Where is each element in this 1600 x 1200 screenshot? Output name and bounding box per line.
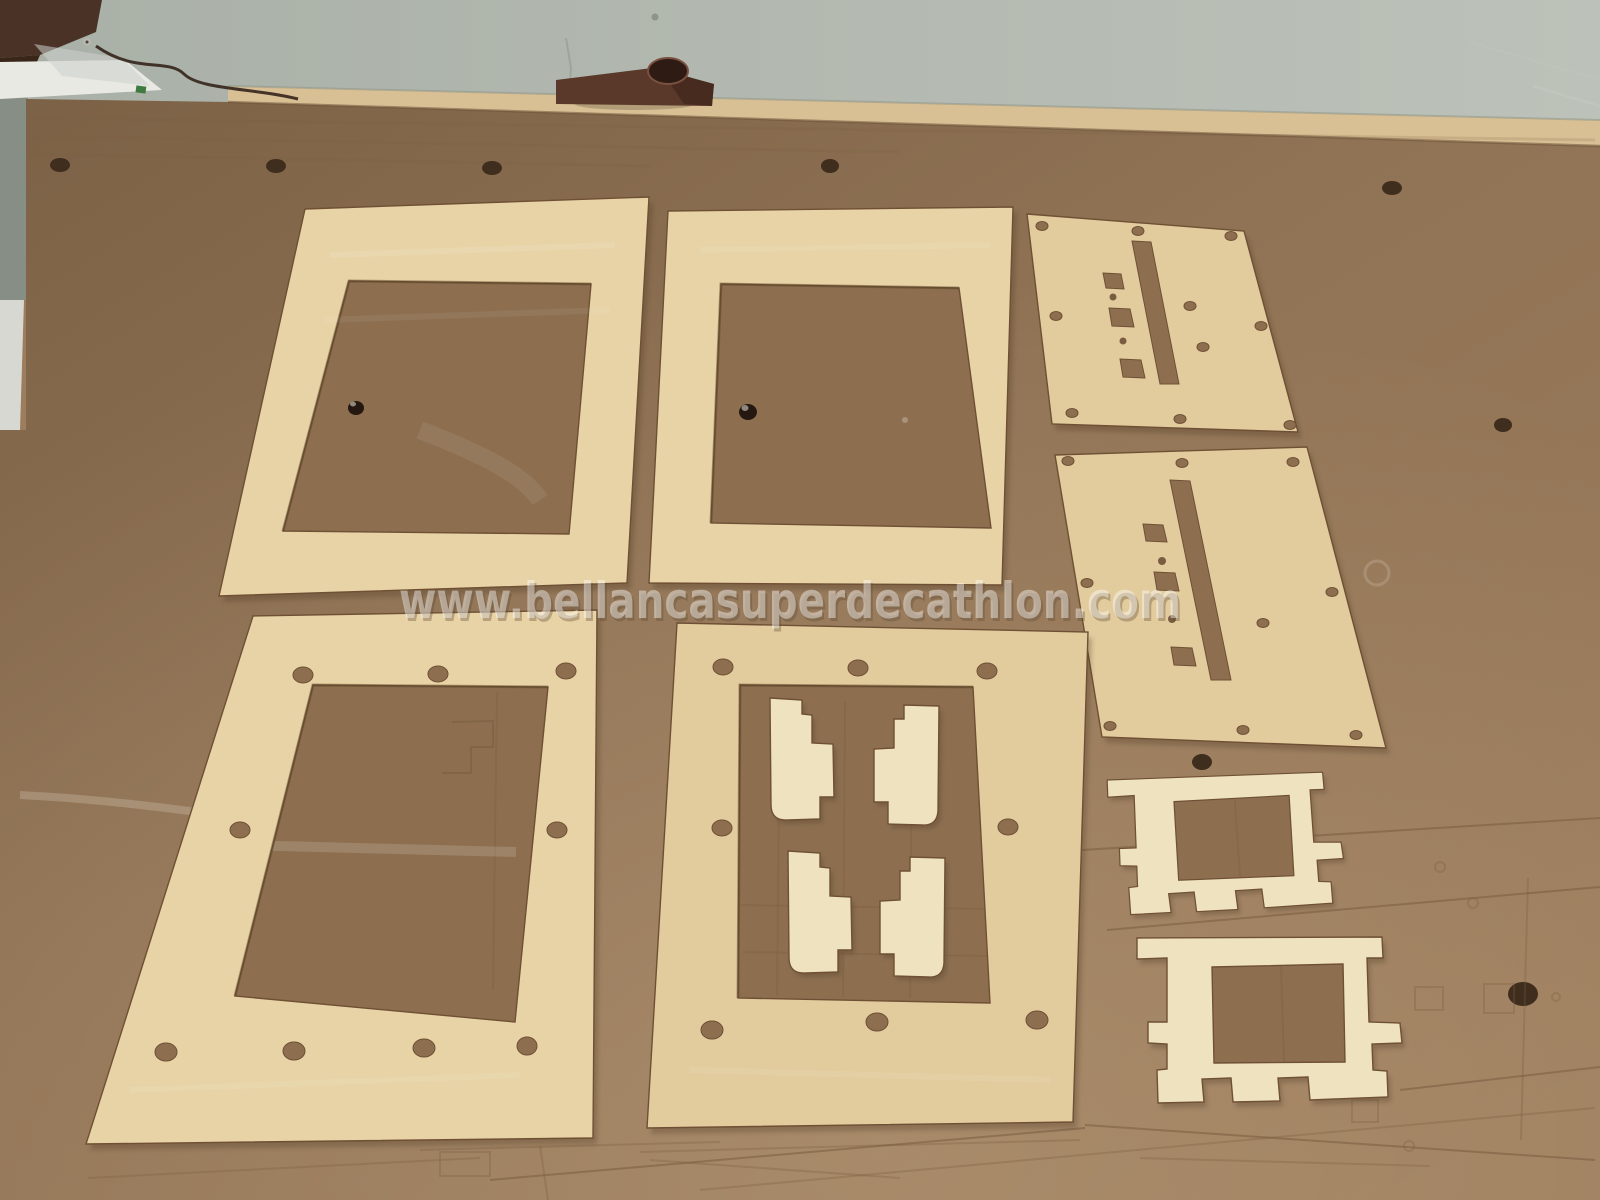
mdf-hole [1494, 418, 1512, 432]
mdf-knot-hole [1508, 982, 1538, 1006]
square-hole [1109, 308, 1134, 327]
bolt-frame-2 [647, 623, 1092, 1134]
mdf-hole [1192, 754, 1212, 770]
workshop-photo: www.bellancasuperdecathlon.com www.bella… [0, 0, 1600, 1200]
watermark: www.bellancasuperdecathlon.com www.bella… [399, 572, 1183, 633]
pilot-hole [1158, 557, 1166, 565]
wall-nail-hole [652, 14, 659, 21]
screw-glint [742, 405, 749, 411]
baseboard-sliver [0, 300, 24, 430]
square-hole [1120, 359, 1145, 378]
square-hole [1143, 524, 1167, 542]
mdf-hole [1382, 181, 1402, 195]
pilot-hole [1120, 338, 1127, 345]
mdf-hole [821, 159, 839, 173]
machine-screw-slot [86, 41, 89, 44]
ladder-former-1 [1107, 772, 1348, 920]
window-frame-2 [649, 207, 1017, 591]
pilot-hole [1110, 294, 1117, 301]
cnc-cut-parts-scene: www.bellancasuperdecathlon.com www.bella… [0, 0, 1600, 1200]
mdf-hole [50, 158, 70, 172]
watermark-text: www.bellancasuperdecathlon.com [399, 572, 1181, 630]
screw-glint [350, 402, 356, 407]
tool-block-socket [648, 58, 688, 84]
spoilboard-screw [739, 404, 757, 420]
mdf-hole [482, 161, 502, 175]
square-hole [1103, 273, 1124, 289]
mdf-hole [266, 159, 286, 173]
square-hole [1171, 647, 1196, 666]
wire-connector [135, 85, 146, 93]
scratch-mark [240, 845, 516, 852]
wall-shadowed-sliver [0, 78, 28, 300]
dust-speck [902, 417, 908, 423]
ladder-former-2 [1137, 937, 1405, 1108]
